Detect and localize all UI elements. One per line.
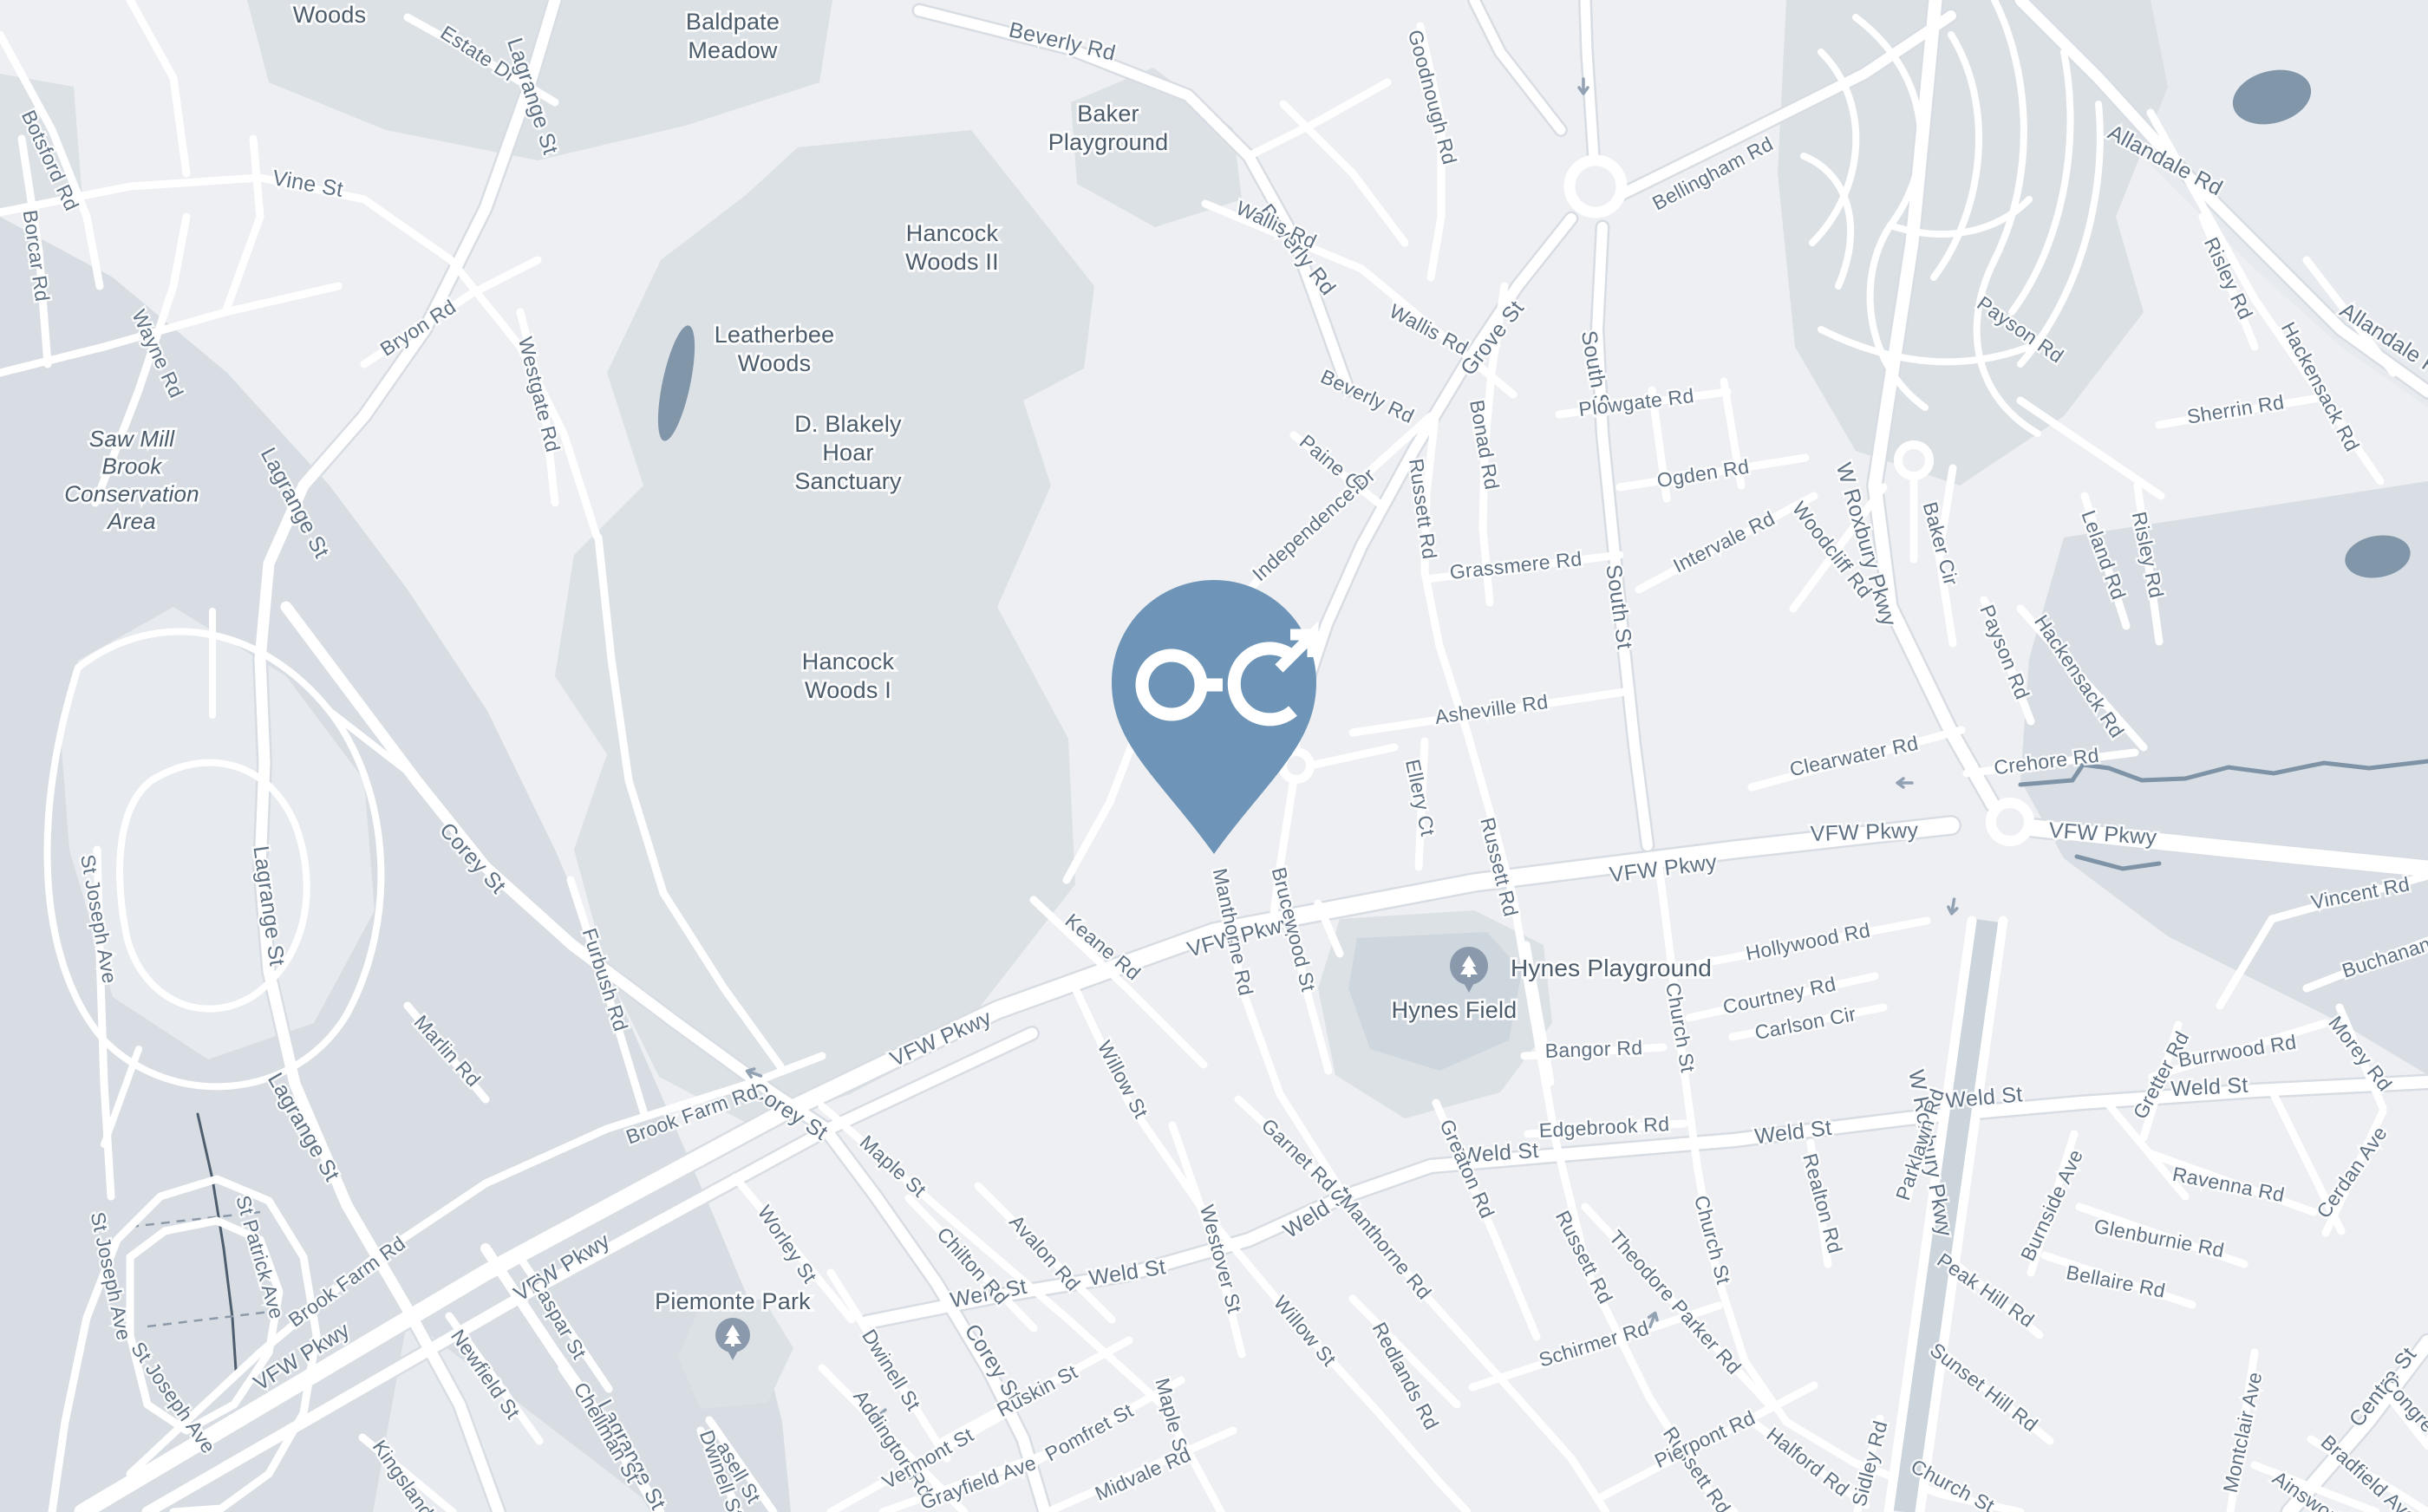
- road-label: VFW Pkwy: [1810, 818, 1919, 846]
- roundabout: [1991, 803, 2029, 841]
- road-label: Bangor Rd: [1544, 1036, 1643, 1062]
- map-viewport[interactable]: Botsford RdBorcar RdVine StWayne RdEstat…: [0, 0, 2428, 1512]
- place-label: Hynes Playground: [1511, 955, 1712, 981]
- place-label: Woods: [293, 2, 367, 28]
- place-label: Hynes Field: [1392, 997, 1517, 1023]
- map-canvas[interactable]: Botsford RdBorcar RdVine StWayne RdEstat…: [0, 0, 2428, 1512]
- roundabout: [1898, 445, 1929, 476]
- roundabout: [1570, 160, 1622, 212]
- road-label: Weld St: [2170, 1073, 2249, 1102]
- place-label: Piemonte Park: [655, 1288, 811, 1314]
